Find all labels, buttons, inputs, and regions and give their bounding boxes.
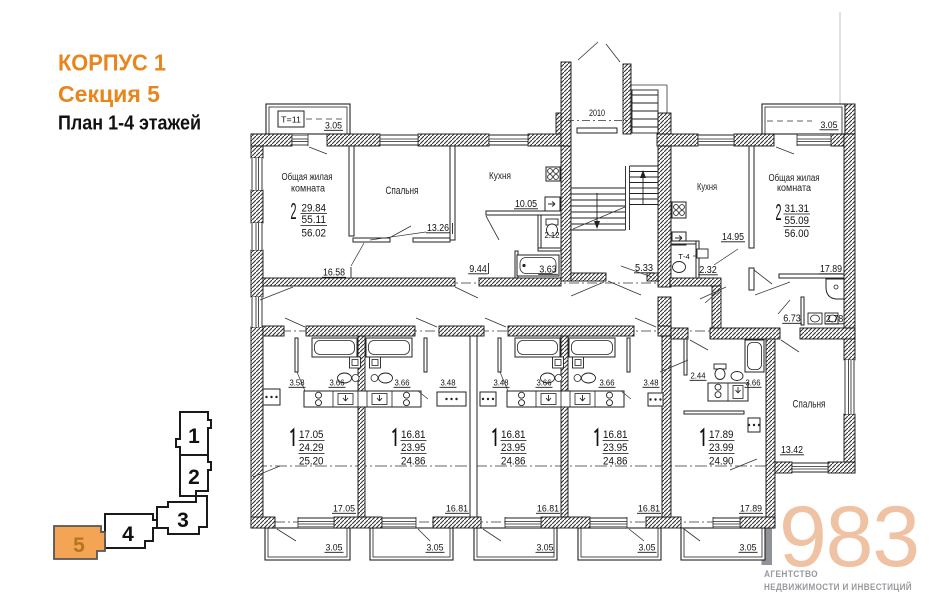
svg-text:3.05: 3.05 — [325, 121, 342, 131]
svg-text:9.44: 9.44 — [469, 264, 487, 275]
svg-text:31.31: 31.31 — [785, 203, 810, 215]
svg-text:25.20: 25.20 — [299, 456, 324, 468]
svg-text:17.05: 17.05 — [333, 504, 355, 514]
svg-text:14.95: 14.95 — [722, 232, 744, 243]
svg-text:16.81: 16.81 — [603, 429, 628, 441]
svg-text:16.81: 16.81 — [446, 504, 468, 514]
svg-text:2010: 2010 — [589, 108, 605, 119]
svg-text:Общая жилая: Общая жилая — [282, 171, 333, 183]
svg-text:16.81: 16.81 — [501, 429, 526, 441]
svg-text:10.05: 10.05 — [515, 199, 537, 210]
svg-text:23.95: 23.95 — [501, 442, 526, 454]
svg-text:План 1-4 этажей: План 1-4 этажей — [58, 113, 201, 135]
svg-text:Кухня: Кухня — [489, 171, 511, 182]
svg-text:Спальня: Спальня — [793, 399, 826, 411]
svg-text:6.73: 6.73 — [783, 314, 801, 325]
svg-text:Т-4: Т-4 — [678, 252, 689, 261]
svg-text:16.58: 16.58 — [323, 268, 345, 279]
svg-text:3.05: 3.05 — [326, 543, 343, 553]
svg-text:24.29: 24.29 — [299, 442, 324, 454]
svg-text:Секция 5: Секция 5 — [58, 81, 160, 107]
svg-text:16.81: 16.81 — [401, 429, 426, 441]
svg-text:2.44: 2.44 — [691, 371, 706, 381]
svg-text:АГЕНТСТВО: АГЕНТСТВО — [764, 569, 818, 579]
svg-text:3.66: 3.66 — [746, 378, 761, 388]
svg-text:56.00: 56.00 — [785, 228, 810, 240]
svg-text:Спальня: Спальня — [386, 185, 419, 197]
svg-text:3.05: 3.05 — [537, 543, 554, 553]
svg-text:2.12: 2.12 — [545, 231, 561, 240]
svg-text:3.66: 3.66 — [395, 378, 410, 388]
svg-text:3.05: 3.05 — [821, 120, 838, 130]
svg-text:17.89: 17.89 — [709, 429, 734, 441]
svg-text:23.95: 23.95 — [603, 442, 628, 454]
svg-text:56.02: 56.02 — [302, 228, 327, 240]
svg-text:1: 1 — [188, 425, 200, 448]
svg-text:13.42: 13.42 — [781, 445, 803, 456]
svg-text:Т=11: Т=11 — [281, 115, 301, 125]
svg-text:16.81: 16.81 — [537, 504, 559, 514]
svg-text:3.05: 3.05 — [740, 543, 757, 553]
svg-text:3.48: 3.48 — [644, 378, 659, 388]
svg-text:3.58: 3.58 — [290, 378, 305, 388]
svg-text:5.33: 5.33 — [635, 263, 653, 274]
svg-text:комната: комната — [291, 184, 325, 195]
svg-text:17.89: 17.89 — [820, 264, 842, 275]
svg-text:23.95: 23.95 — [401, 442, 426, 454]
svg-text:16.81: 16.81 — [638, 504, 660, 514]
svg-text:55.11: 55.11 — [302, 214, 327, 226]
svg-text:2: 2 — [188, 466, 200, 489]
svg-text:3.66: 3.66 — [537, 378, 552, 388]
svg-text:17.89: 17.89 — [740, 504, 762, 514]
svg-text:комната: комната — [777, 183, 811, 194]
svg-text:24.86: 24.86 — [603, 456, 628, 468]
svg-text:2.78: 2.78 — [826, 314, 844, 325]
svg-text:23.99: 23.99 — [709, 442, 734, 454]
svg-text:24.86: 24.86 — [401, 456, 426, 468]
svg-text:3.48: 3.48 — [441, 378, 456, 388]
svg-text:2.32: 2.32 — [699, 265, 717, 276]
svg-text:29.84: 29.84 — [302, 203, 327, 215]
svg-text:2: 2 — [776, 199, 782, 225]
svg-text:3.05: 3.05 — [427, 543, 444, 553]
svg-text:Кухня: Кухня — [697, 182, 717, 193]
svg-text:3.66: 3.66 — [330, 378, 345, 388]
svg-text:5: 5 — [73, 534, 85, 557]
svg-text:4: 4 — [122, 523, 134, 546]
svg-text:55.09: 55.09 — [785, 215, 810, 227]
svg-text:2: 2 — [291, 198, 297, 224]
svg-text:3.48: 3.48 — [494, 378, 509, 388]
svg-text:3.66: 3.66 — [600, 378, 615, 388]
svg-text:3.63: 3.63 — [539, 265, 557, 276]
svg-text:24.90: 24.90 — [709, 456, 734, 468]
svg-text:13.26: 13.26 — [427, 223, 449, 234]
svg-text:24.86: 24.86 — [501, 456, 526, 468]
svg-text:КОРПУС 1: КОРПУС 1 — [58, 50, 166, 76]
svg-text:3.05: 3.05 — [639, 543, 656, 553]
svg-text:3: 3 — [177, 509, 189, 532]
svg-text:НЕДВИЖИМОСТИ И ИНВЕСТИЦИЙ: НЕДВИЖИМОСТИ И ИНВЕСТИЦИЙ — [764, 581, 912, 592]
svg-text:17.05: 17.05 — [299, 429, 324, 441]
